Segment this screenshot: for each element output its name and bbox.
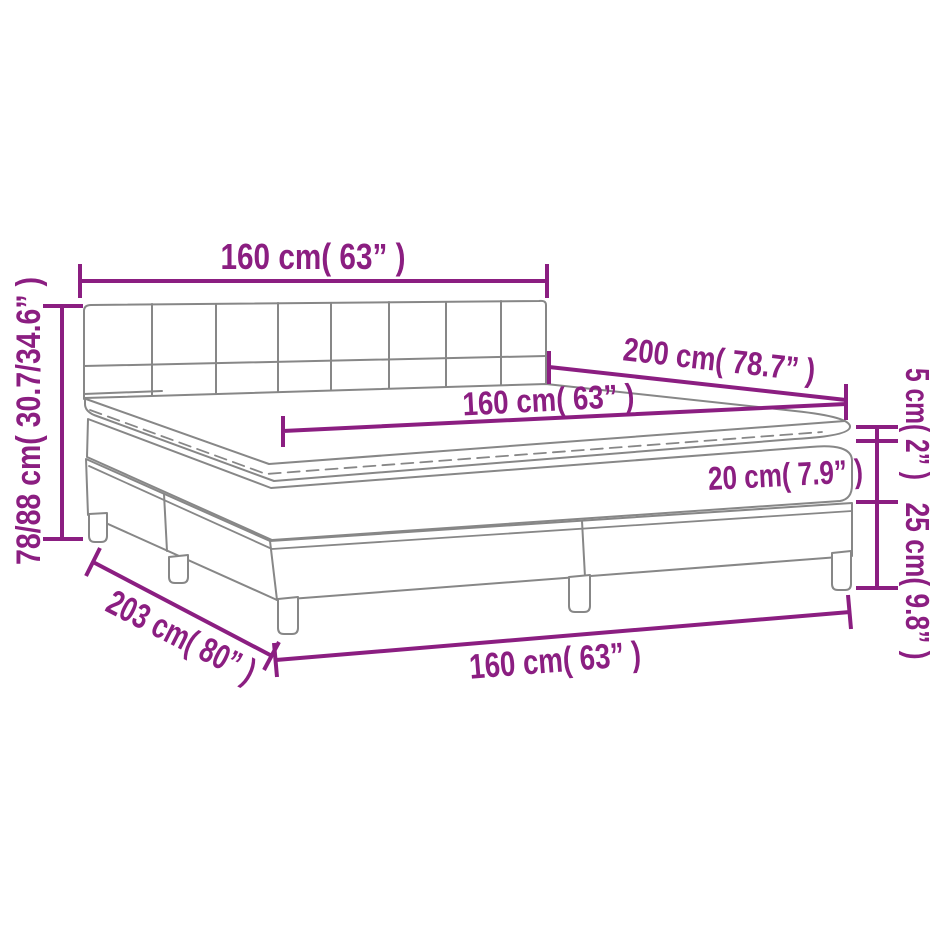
label-headboard-width: 160 cm( 63” ) [221, 236, 406, 277]
label-topper-thickness: 5 cm( 2” ) [899, 368, 936, 480]
leg-front-right [832, 551, 851, 590]
dimension-diagram: 160 cm( 63” ) 78/88 cm( 30.7/34.6” ) 200… [0, 0, 947, 947]
dim-line-layer-heights [856, 427, 898, 588]
label-overall-height: 78/88 cm( 30.7/34.6” ) [10, 277, 48, 565]
dim-line-overall-height [43, 306, 83, 539]
bed-diagram-svg: 160 cm( 63” ) 78/88 cm( 30.7/34.6” ) 200… [0, 0, 947, 947]
leg-front-mid [569, 575, 590, 612]
leg-front-left [278, 597, 298, 634]
leg-back-left [89, 513, 107, 542]
label-base-height: 25 cm( 9.8” ) [899, 503, 936, 660]
leg-left-mid [169, 555, 188, 583]
